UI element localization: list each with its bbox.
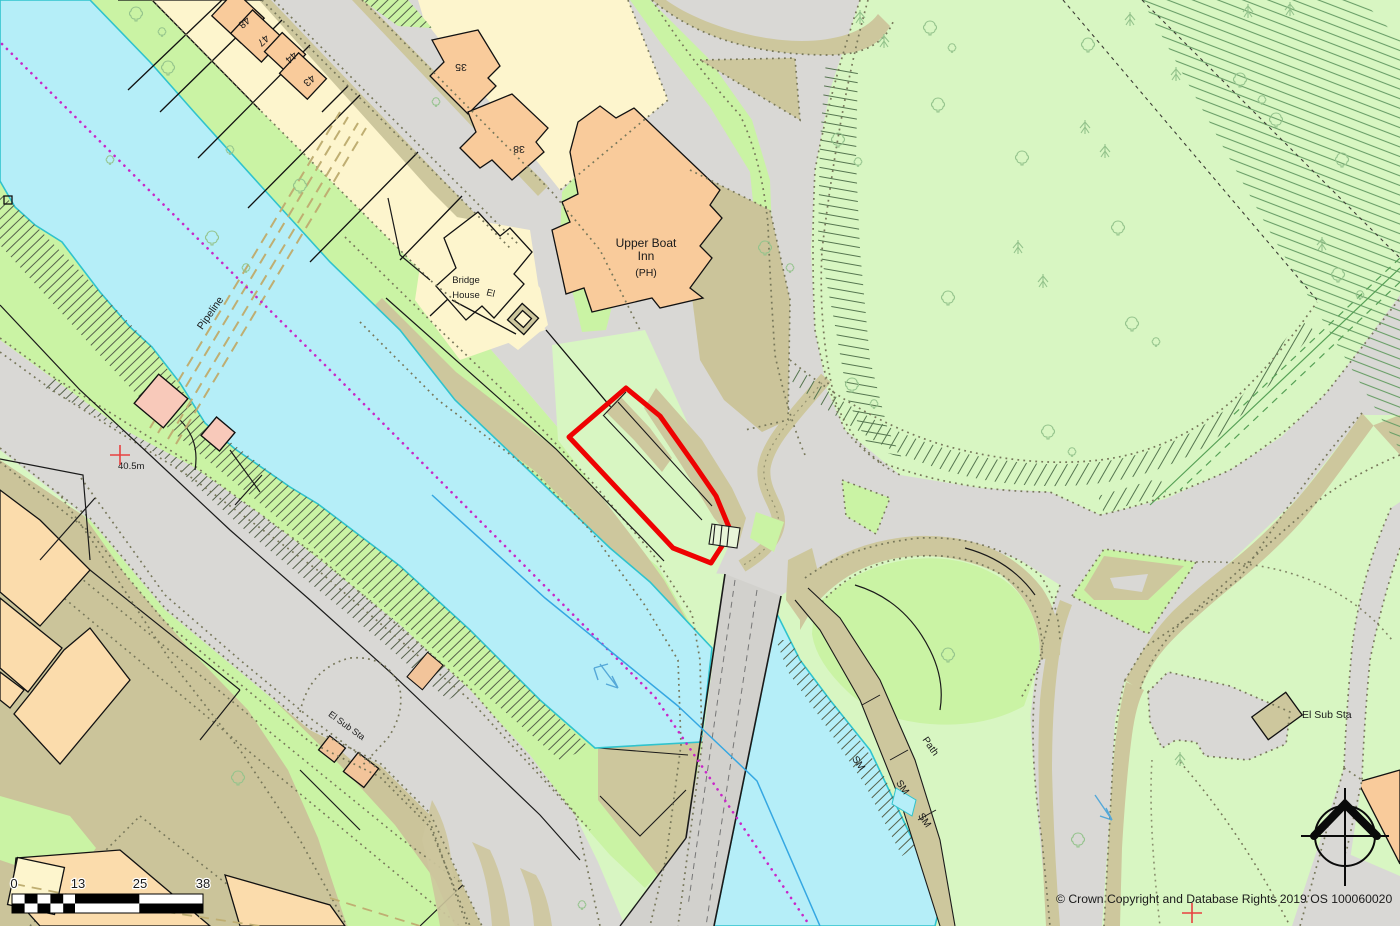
svg-text:25: 25 <box>133 876 147 891</box>
svg-text:0: 0 <box>10 876 17 891</box>
svg-text:© Crown Copyright and Database: © Crown Copyright and Database Rights 20… <box>1056 892 1392 906</box>
svg-text:13: 13 <box>71 876 85 891</box>
svg-text:Bridge: Bridge <box>452 275 479 286</box>
svg-text:(PH): (PH) <box>635 267 657 279</box>
svg-text:35: 35 <box>455 61 467 73</box>
svg-text:House: House <box>452 290 479 301</box>
svg-text:38: 38 <box>196 876 210 891</box>
svg-text:Upper Boat: Upper Boat <box>616 236 677 250</box>
svg-text:El Sub Sta: El Sub Sta <box>1302 709 1352 721</box>
svg-text:40.5m: 40.5m <box>118 461 144 472</box>
svg-text:Inn: Inn <box>638 249 655 263</box>
svg-text:38: 38 <box>513 143 525 155</box>
